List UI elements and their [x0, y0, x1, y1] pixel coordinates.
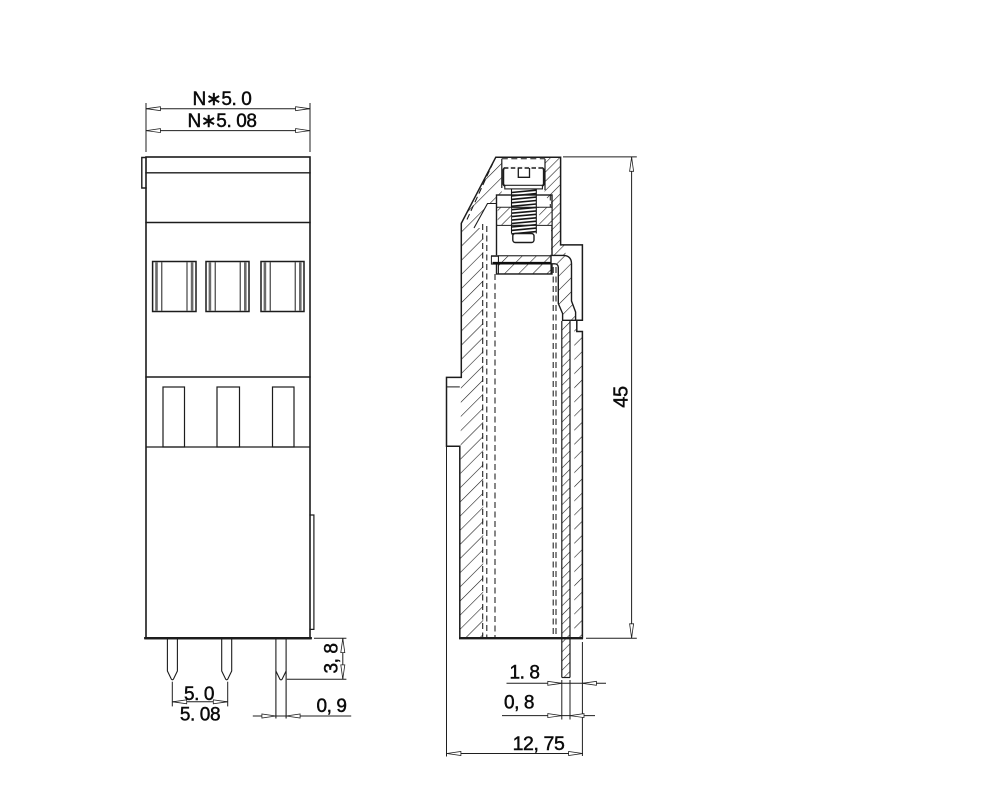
- svg-text:0, 9: 0, 9: [316, 696, 346, 717]
- svg-text:12, 75: 12, 75: [513, 733, 565, 755]
- svg-text:N∗5. 0: N∗5. 0: [193, 89, 252, 110]
- svg-text:45: 45: [611, 386, 633, 408]
- svg-text:0, 8: 0, 8: [504, 693, 534, 714]
- svg-text:N∗5. 08: N∗5. 08: [187, 111, 256, 132]
- svg-text:5. 0: 5. 0: [184, 684, 214, 705]
- svg-text:1. 8: 1. 8: [509, 663, 539, 684]
- svg-text:3, 8: 3, 8: [322, 643, 343, 673]
- svg-text:5. 08: 5. 08: [180, 705, 220, 726]
